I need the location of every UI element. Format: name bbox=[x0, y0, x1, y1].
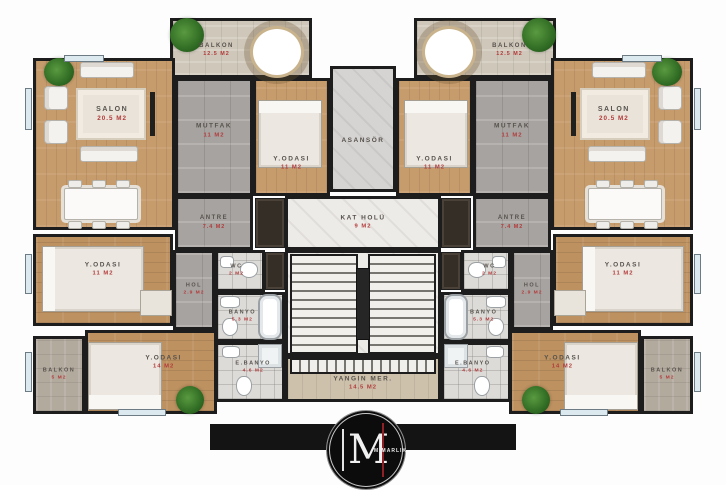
bed bbox=[42, 246, 144, 312]
room-label: BALKON bbox=[492, 43, 527, 51]
room-area: 5.3 M2 bbox=[229, 318, 256, 324]
room-area: 20.5 M2 bbox=[598, 115, 630, 123]
window bbox=[560, 409, 608, 416]
room-label: SALON bbox=[598, 105, 630, 114]
plant bbox=[44, 58, 74, 86]
room-area: 2.9 M2 bbox=[183, 291, 204, 297]
room-area: 11 M2 bbox=[416, 165, 453, 173]
room-label: SALON bbox=[96, 105, 128, 114]
dining-chair bbox=[116, 221, 130, 229]
window bbox=[622, 55, 662, 62]
stair-flight bbox=[290, 254, 358, 354]
dining-chair bbox=[620, 180, 634, 188]
bed bbox=[564, 342, 638, 410]
sink bbox=[222, 346, 240, 358]
armchair bbox=[44, 86, 68, 110]
room-area: 9 M2 bbox=[340, 224, 385, 232]
room-label: E.BANYO bbox=[235, 360, 271, 367]
room-label: Y.ODASI bbox=[145, 354, 182, 362]
dining-table bbox=[64, 188, 138, 220]
room-area: 11 M2 bbox=[273, 165, 310, 173]
room-area: 5 M2 bbox=[651, 376, 684, 382]
room-area: 12.5 M2 bbox=[492, 52, 527, 59]
room-label: Y.ODASI bbox=[544, 354, 581, 362]
balcony-table bbox=[250, 26, 304, 78]
toilet bbox=[236, 376, 252, 396]
sofa bbox=[592, 62, 646, 78]
dining-chair bbox=[68, 180, 82, 188]
room-area: 11 M2 bbox=[196, 132, 232, 140]
room-label: ANTRE bbox=[498, 215, 526, 223]
room-area: 11 M2 bbox=[605, 271, 642, 279]
room-mutfak-sag: MUTFAK11 M2 bbox=[473, 78, 551, 196]
company-logo: M MİMARLIK bbox=[326, 410, 406, 490]
logo-bar bbox=[342, 429, 344, 471]
closet bbox=[441, 198, 471, 248]
room-area: 7.4 M2 bbox=[498, 224, 526, 231]
bathtub bbox=[258, 294, 282, 340]
room-area: 7.4 M2 bbox=[200, 224, 228, 231]
window bbox=[25, 254, 32, 294]
room-label: Y.ODASI bbox=[605, 261, 642, 269]
dining-chair bbox=[620, 221, 634, 229]
room-label: E.BANYO bbox=[455, 360, 491, 367]
dining-chair bbox=[92, 180, 106, 188]
room-hol-sag: HOL2.9 M2 bbox=[511, 250, 553, 330]
room-label: BANYO bbox=[470, 310, 497, 317]
sink bbox=[486, 296, 506, 308]
dining-chair bbox=[596, 221, 610, 229]
plant bbox=[522, 386, 550, 414]
window bbox=[694, 88, 701, 130]
window bbox=[64, 55, 104, 62]
room-label: Y.ODASI bbox=[273, 155, 310, 163]
armchair bbox=[658, 86, 682, 110]
dining-table bbox=[588, 188, 662, 220]
room-label: BALKON bbox=[43, 368, 76, 375]
room-balkon-alt-sol: BALKON5 M2 bbox=[33, 336, 85, 414]
room-hol-sol: HOL2.9 M2 bbox=[173, 250, 215, 330]
sink bbox=[220, 296, 240, 308]
room-asansor: ASANSÖR bbox=[330, 66, 396, 192]
room-label: BALKON bbox=[651, 368, 684, 375]
desk bbox=[140, 290, 172, 316]
room-area: 14 M2 bbox=[544, 364, 581, 372]
room-antre-sol: ANTRE7.4 M2 bbox=[175, 196, 253, 250]
armchair bbox=[44, 120, 68, 144]
dining-chair bbox=[92, 221, 106, 229]
sofa bbox=[588, 146, 646, 162]
dining-chair bbox=[116, 180, 130, 188]
room-label: ASANSÖR bbox=[341, 137, 384, 145]
room-label: Y.ODASI bbox=[416, 155, 453, 163]
room-area: 14.5 M2 bbox=[333, 385, 392, 393]
room-label: BANYO bbox=[229, 310, 256, 317]
tv-unit bbox=[571, 92, 576, 136]
window bbox=[118, 409, 166, 416]
window bbox=[694, 254, 701, 294]
room-label: KAT HOLÜ bbox=[340, 214, 385, 222]
room-area: 20.5 M2 bbox=[96, 115, 128, 123]
room-label: HOL bbox=[521, 283, 542, 290]
room-label: Y.ODASI bbox=[85, 261, 122, 269]
dining-chair bbox=[644, 180, 658, 188]
dining-chair bbox=[68, 221, 82, 229]
window bbox=[694, 352, 701, 392]
logo-text: MİMARLIK bbox=[374, 448, 407, 454]
stair-flight bbox=[368, 254, 436, 354]
room-balkon-alt-sag: BALKON5 M2 bbox=[641, 336, 693, 414]
toilet bbox=[474, 376, 490, 396]
stair-flight bbox=[290, 358, 436, 374]
room-area: 2 M2 bbox=[482, 272, 497, 278]
dining-chair bbox=[596, 180, 610, 188]
armchair bbox=[658, 120, 682, 144]
bathtub bbox=[444, 294, 468, 340]
bed bbox=[88, 342, 162, 410]
room-label: MUTFAK bbox=[494, 123, 530, 131]
room-antre-sag: ANTRE7.4 M2 bbox=[473, 196, 551, 250]
sofa bbox=[80, 62, 134, 78]
balcony-table bbox=[422, 26, 476, 78]
desk bbox=[554, 290, 586, 316]
room-mutfak-sol: MUTFAK11 M2 bbox=[175, 78, 253, 196]
room-kat-holu: KAT HOLÜ9 M2 bbox=[285, 196, 441, 250]
room-label: BALKON bbox=[199, 43, 234, 51]
room-label: WC bbox=[482, 264, 497, 271]
floor-plan: BALKON12.5 M2SALON20.5 M2MUTFAK11 M2Y.OD… bbox=[0, 0, 726, 485]
room-area: 12.5 M2 bbox=[199, 52, 234, 59]
sink bbox=[486, 346, 504, 358]
room-area: 14 M2 bbox=[145, 364, 182, 372]
closet bbox=[255, 198, 285, 248]
room-label: HOL bbox=[183, 283, 204, 290]
tv-unit bbox=[150, 92, 155, 136]
stair-rail bbox=[356, 268, 370, 340]
closet bbox=[441, 252, 461, 290]
plant bbox=[176, 386, 204, 414]
room-area: 4.6 M2 bbox=[235, 369, 271, 375]
room-area: 5.3 M2 bbox=[470, 318, 497, 324]
room-area: 4.6 M2 bbox=[455, 369, 491, 375]
room-label: WC bbox=[229, 264, 244, 271]
room-area: 2.9 M2 bbox=[521, 291, 542, 297]
plant bbox=[652, 58, 682, 86]
closet bbox=[265, 252, 285, 290]
room-area: 11 M2 bbox=[85, 271, 122, 279]
plant bbox=[522, 18, 556, 52]
window bbox=[25, 88, 32, 130]
room-area: 11 M2 bbox=[494, 132, 530, 140]
room-area: 5 M2 bbox=[43, 376, 76, 382]
room-area: 2 M2 bbox=[229, 272, 244, 278]
room-label: ANTRE bbox=[200, 215, 228, 223]
dining-chair bbox=[644, 221, 658, 229]
room-label: YANGIN MER. bbox=[333, 375, 392, 383]
sofa bbox=[80, 146, 138, 162]
window bbox=[25, 352, 32, 392]
bed bbox=[582, 246, 684, 312]
room-label: MUTFAK bbox=[196, 123, 232, 131]
